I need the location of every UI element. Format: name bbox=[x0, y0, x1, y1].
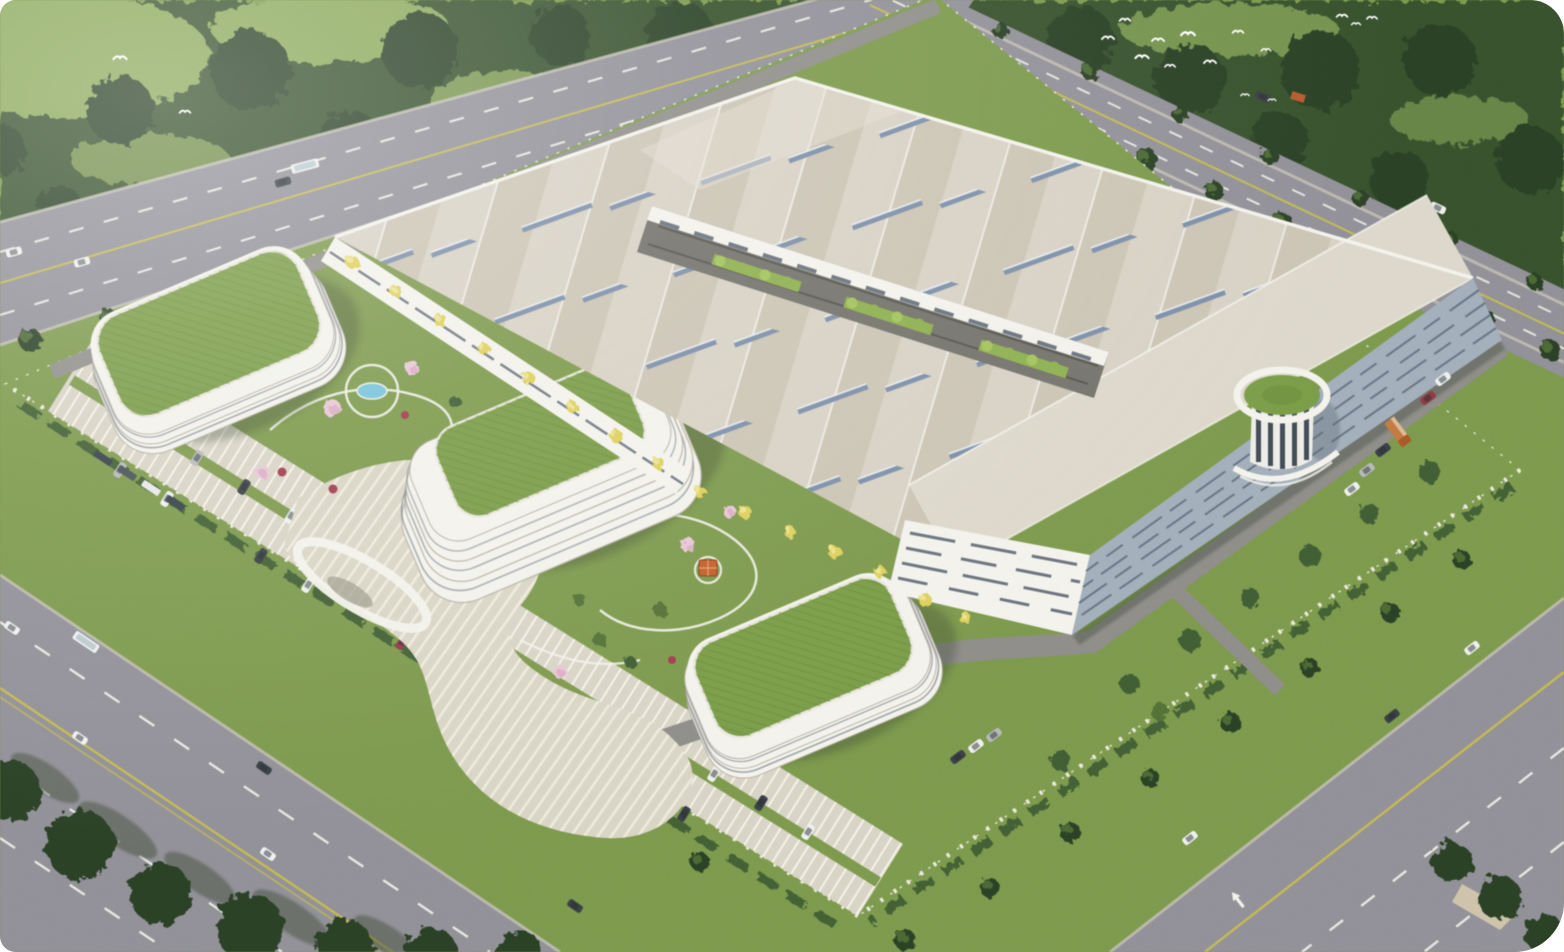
rendering-frame bbox=[0, 0, 1564, 952]
grain-overlay bbox=[0, 0, 1564, 952]
aerial-rendering bbox=[0, 0, 1564, 952]
